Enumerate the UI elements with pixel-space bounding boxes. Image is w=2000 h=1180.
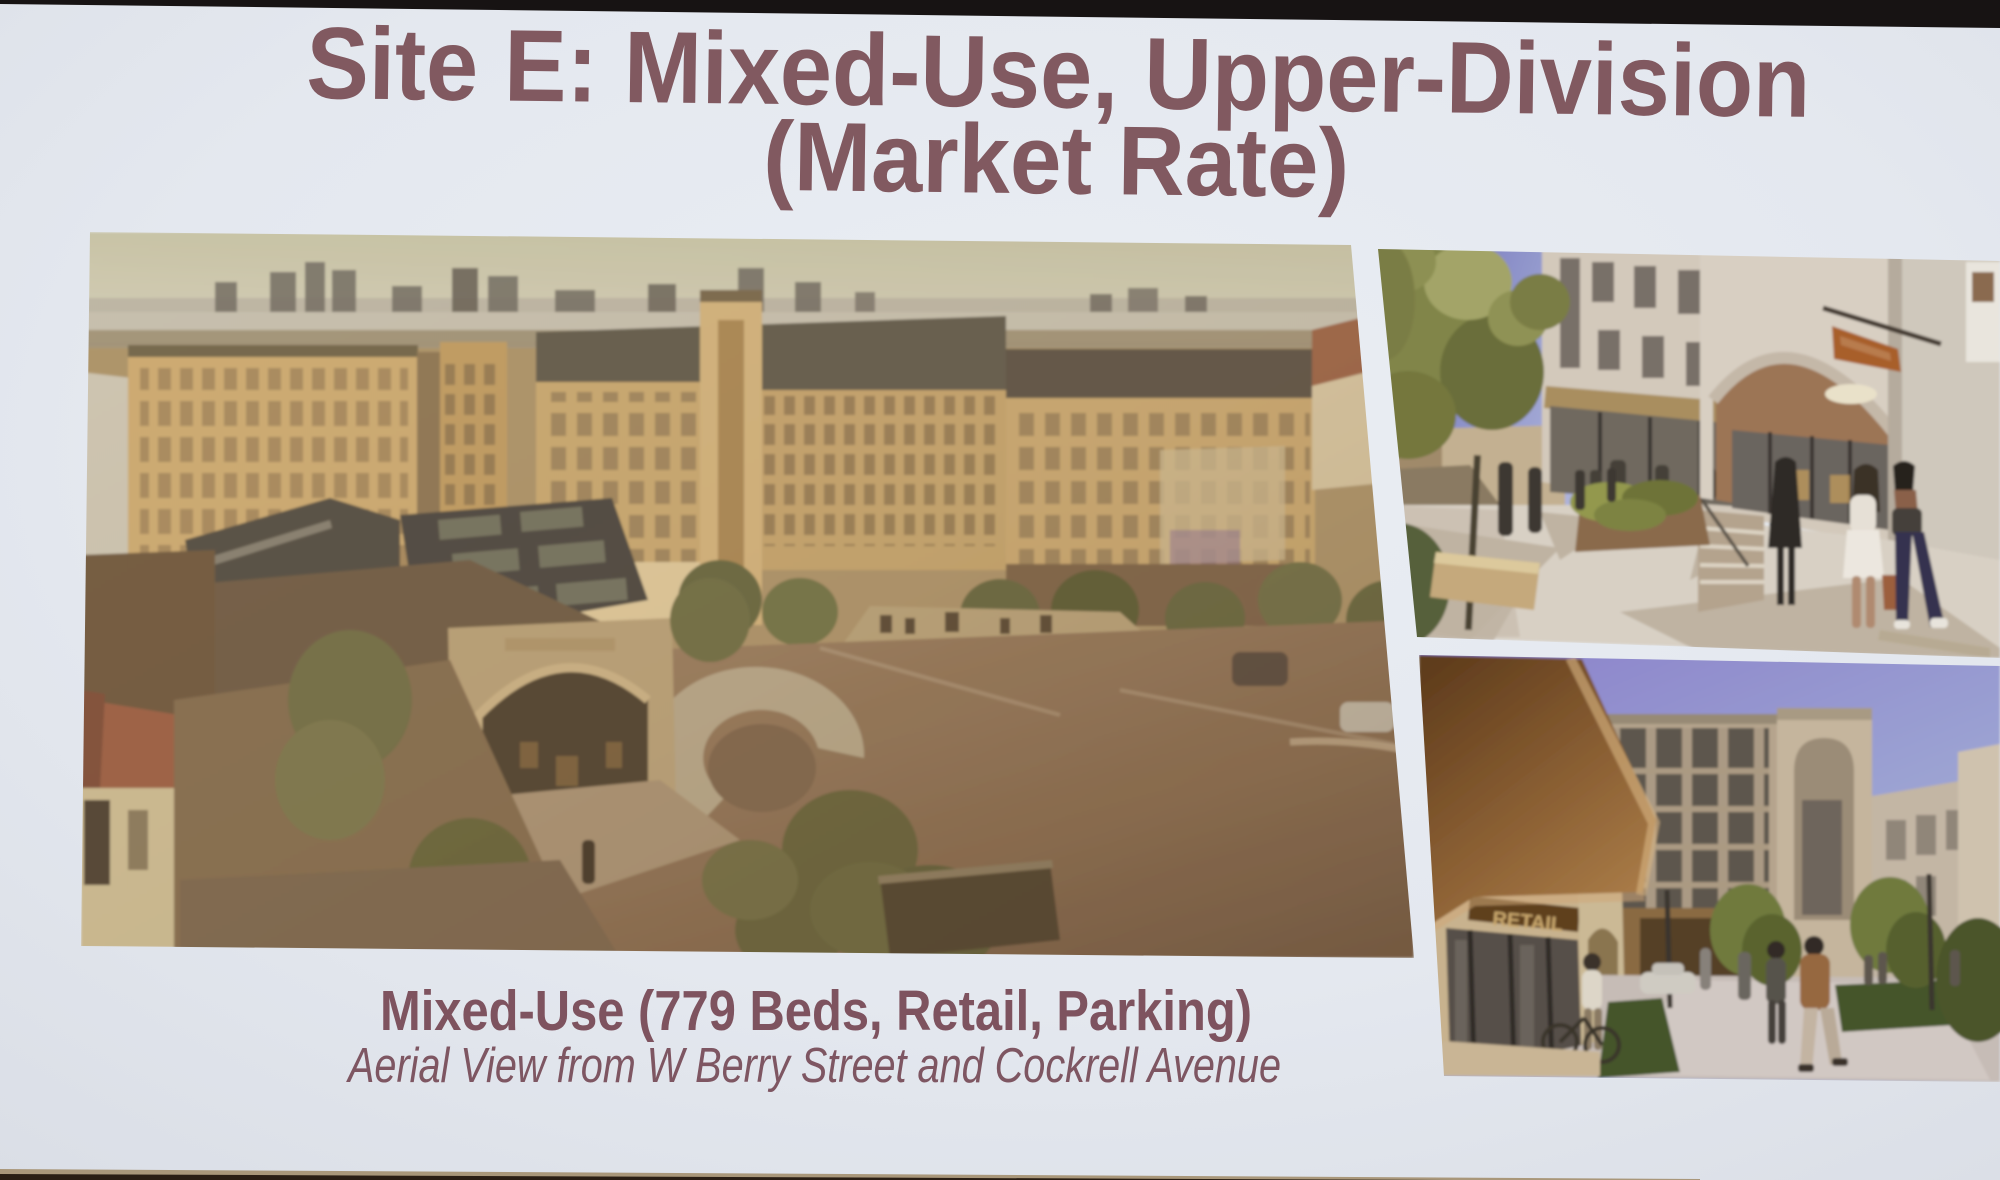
svg-text:Mixed-Use (779 Beds, Retail, P: Mixed-Use (779 Beds, Retail, Parking) xyxy=(380,979,1252,1043)
svg-text:(Market Rate): (Market Rate) xyxy=(763,101,1350,218)
svg-text:Aerial View from W Berry Stree: Aerial View from W Berry Street and Cock… xyxy=(346,1039,1281,1093)
